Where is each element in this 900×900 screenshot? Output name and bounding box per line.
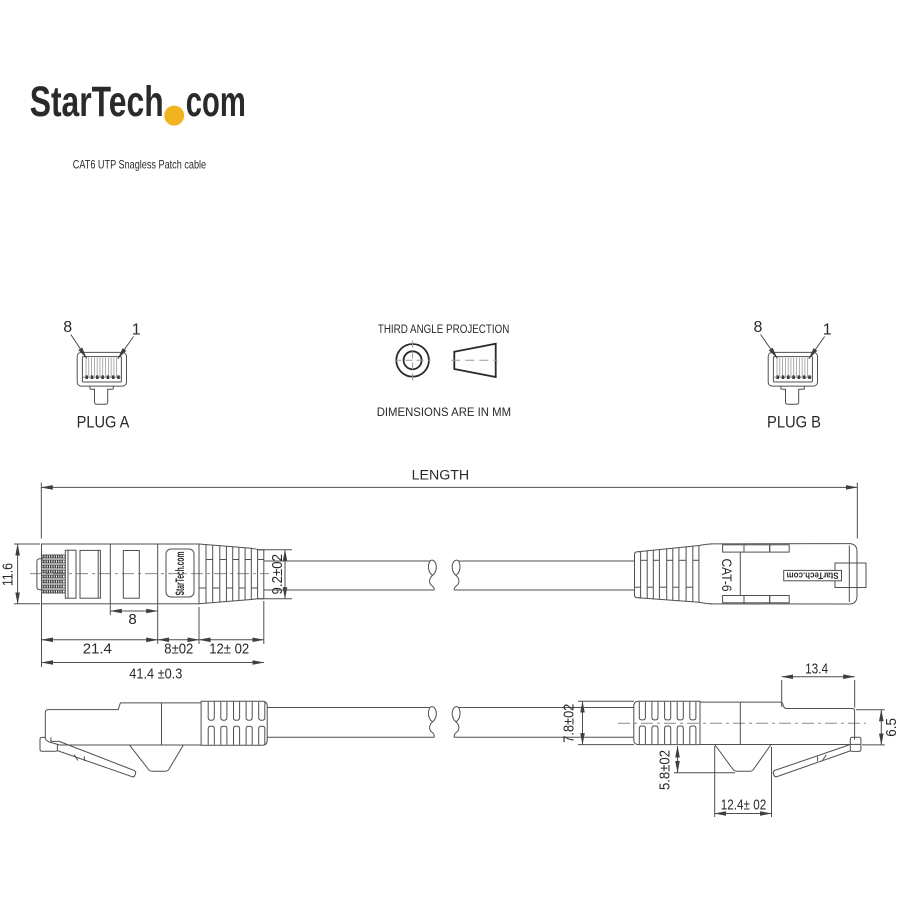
svg-text:5.8±02: 5.8±02	[657, 750, 674, 790]
svg-text:StarTech.com: StarTech.com	[175, 552, 187, 596]
svg-text:StarTech: StarTech	[30, 79, 164, 126]
svg-text:21.4: 21.4	[83, 641, 112, 658]
svg-text:CAT-6: CAT-6	[718, 559, 734, 592]
svg-text:12± 02: 12± 02	[209, 641, 249, 658]
svg-text:1: 1	[823, 321, 832, 338]
svg-text:8: 8	[754, 319, 763, 336]
svg-text:11.6: 11.6	[0, 563, 17, 586]
svg-text:com: com	[186, 79, 246, 126]
svg-text:8: 8	[128, 611, 136, 628]
svg-text:DIMENSIONS ARE IN MM: DIMENSIONS ARE IN MM	[377, 405, 511, 419]
svg-text:StarTech.com: StarTech.com	[787, 569, 839, 580]
svg-text:LENGTH: LENGTH	[412, 467, 470, 483]
svg-text:8±02: 8±02	[164, 641, 193, 658]
svg-text:PLUG A: PLUG A	[77, 413, 130, 431]
svg-text:THIRD ANGLE PROJECTION: THIRD ANGLE PROJECTION	[378, 322, 510, 336]
svg-text:CAT6 UTP Snagless Patch cable: CAT6 UTP Snagless Patch cable	[73, 159, 206, 172]
svg-text:8: 8	[63, 319, 72, 336]
svg-text:9.2±02: 9.2±02	[269, 554, 286, 595]
svg-text:12.4± 02: 12.4± 02	[721, 797, 766, 814]
svg-text:PLUG B: PLUG B	[767, 413, 821, 431]
svg-text:7.8±02: 7.8±02	[560, 704, 577, 743]
svg-text:6.5: 6.5	[883, 718, 900, 737]
svg-text:13.4: 13.4	[805, 661, 828, 678]
svg-text:1: 1	[132, 321, 141, 338]
svg-text:41.4 ±0.3: 41.4 ±0.3	[129, 666, 182, 683]
